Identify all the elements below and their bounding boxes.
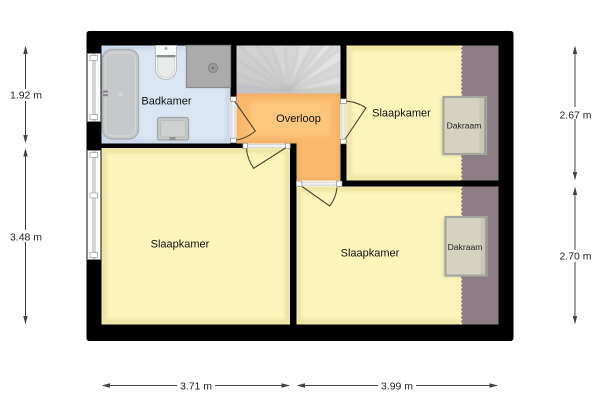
svg-text:3.71 m: 3.71 m	[180, 381, 212, 393]
svg-text:Dakraam: Dakraam	[448, 242, 483, 252]
svg-text:1.92 m: 1.92 m	[10, 90, 42, 102]
svg-text:2.67 m: 2.67 m	[559, 110, 591, 122]
svg-text:Slaapkamer: Slaapkamer	[372, 108, 431, 120]
svg-text:Overloop: Overloop	[276, 113, 321, 125]
svg-text:Slaapkamer: Slaapkamer	[151, 239, 210, 251]
svg-text:3.99 m: 3.99 m	[381, 381, 413, 393]
svg-text:3.48 m: 3.48 m	[10, 232, 42, 244]
svg-text:2.70 m: 2.70 m	[559, 251, 591, 263]
svg-text:Dakraam: Dakraam	[447, 121, 482, 131]
svg-text:Slaapkamer: Slaapkamer	[341, 248, 400, 260]
svg-text:Badkamer: Badkamer	[141, 96, 191, 108]
